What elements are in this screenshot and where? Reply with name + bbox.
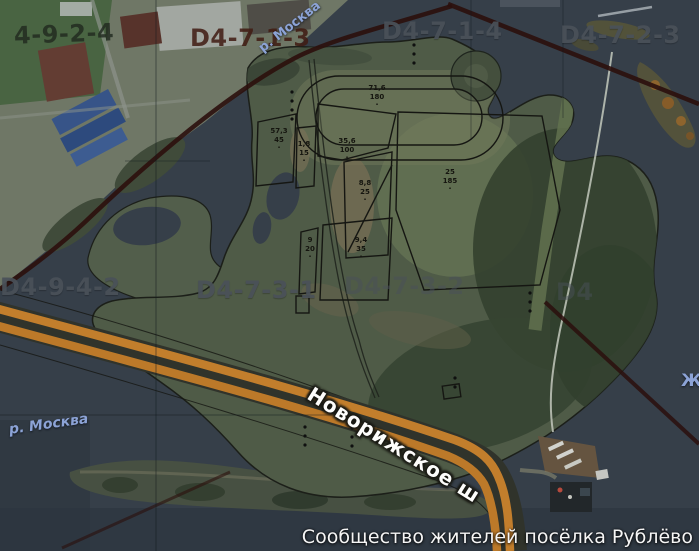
terrain-art [0,0,699,551]
satellite-map[interactable]: 4-9-2-4D4-7-1-3D4-7-1-4D4-7-2-3D4-9-4-2D… [0,0,699,551]
watermark-caption: Сообщество жителей посёлка Рублёво [302,526,693,548]
